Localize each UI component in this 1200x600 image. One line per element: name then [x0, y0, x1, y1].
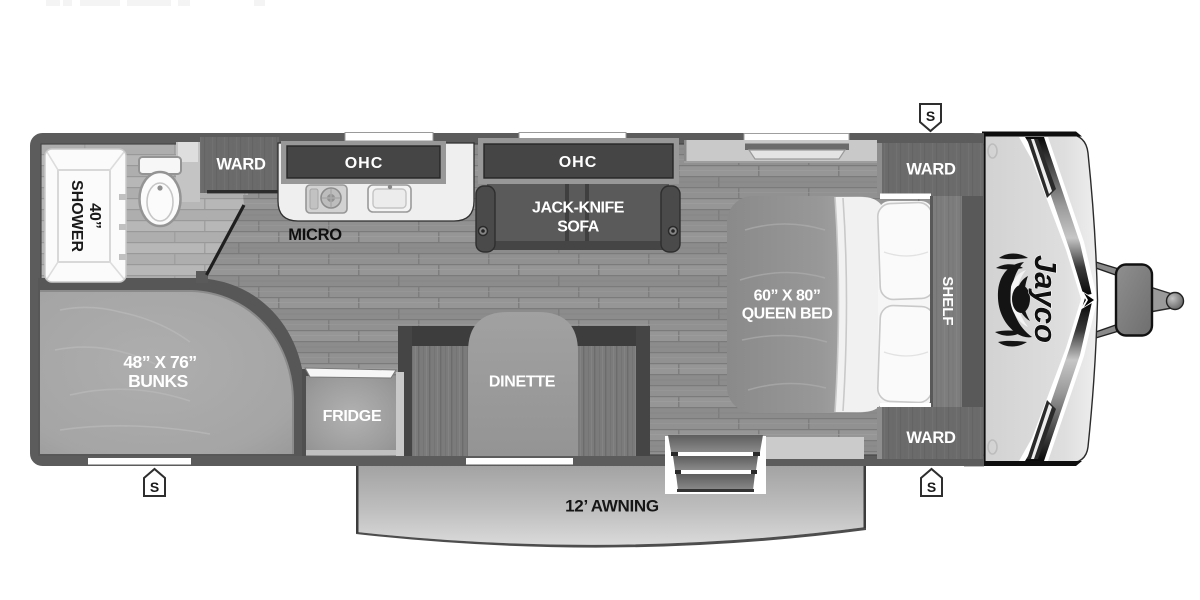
- svg-text:12’ AWNING: 12’ AWNING: [565, 497, 659, 516]
- svg-text:FRIDGE: FRIDGE: [323, 408, 382, 425]
- svg-text:SOFA: SOFA: [557, 219, 600, 236]
- svg-text:SHOWER: SHOWER: [68, 180, 85, 252]
- svg-text:WARD: WARD: [906, 161, 956, 179]
- svg-text:DINETTE: DINETTE: [489, 374, 556, 391]
- svg-text:OHC: OHC: [345, 155, 384, 172]
- svg-text:S: S: [150, 479, 159, 495]
- svg-text:WARD: WARD: [216, 156, 266, 174]
- svg-text:S: S: [926, 108, 935, 124]
- svg-text:WARD: WARD: [906, 429, 956, 447]
- svg-text:60” X 80”: 60” X 80”: [754, 288, 821, 305]
- svg-text:OHC: OHC: [559, 154, 598, 171]
- svg-text:SHELF: SHELF: [939, 276, 956, 325]
- svg-text:BUNKS: BUNKS: [128, 371, 188, 391]
- svg-text:Jayco: Jayco: [1028, 255, 1063, 343]
- svg-text:48” X 76”: 48” X 76”: [123, 352, 196, 372]
- svg-text:JACK-KNIFE: JACK-KNIFE: [532, 200, 625, 217]
- svg-text:S: S: [927, 479, 936, 495]
- svg-text:MICRO: MICRO: [288, 226, 342, 244]
- svg-text:QUEEN BED: QUEEN BED: [742, 306, 833, 323]
- svg-text:40”: 40”: [86, 203, 103, 229]
